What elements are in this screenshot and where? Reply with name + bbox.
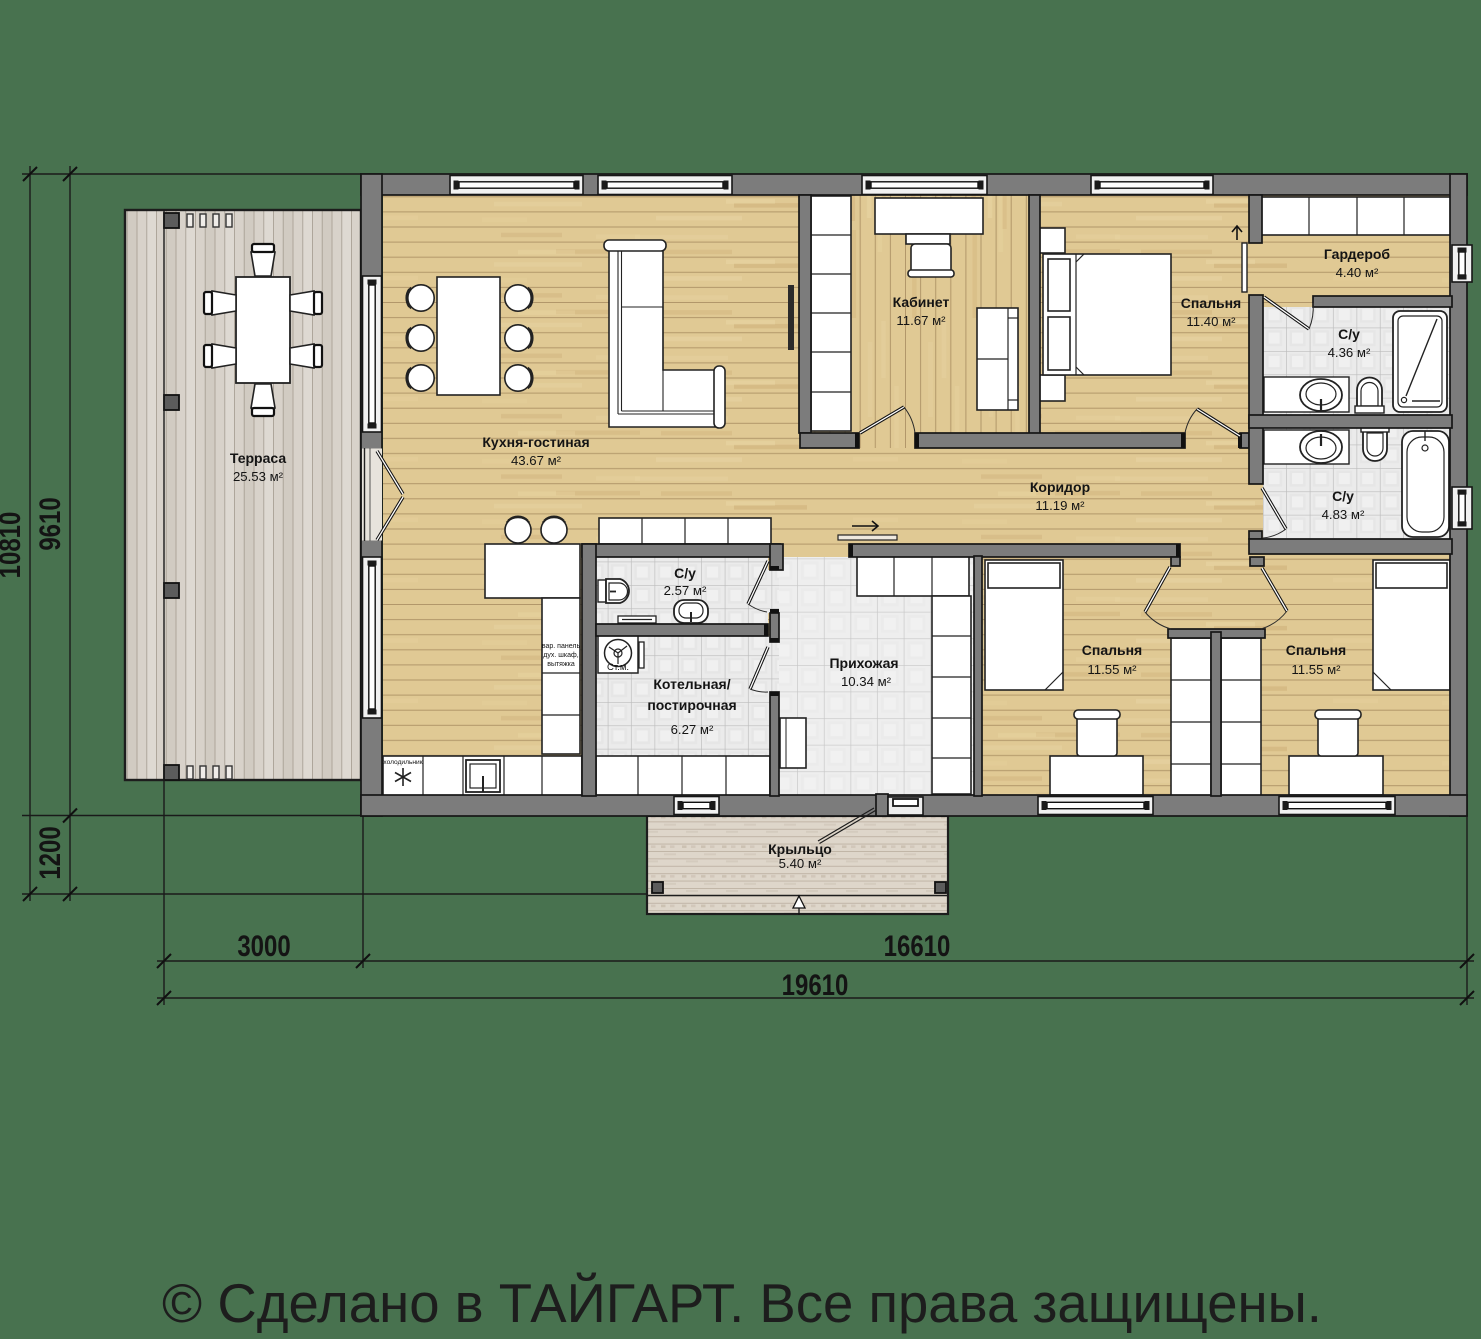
svg-text:дух. шкаф,: дух. шкаф,	[543, 652, 578, 659]
svg-text:3000: 3000	[237, 928, 290, 962]
svg-text:11.19 м²: 11.19 м²	[1035, 498, 1085, 513]
svg-text:вытяжка: вытяжка	[547, 661, 575, 668]
svg-text:4.83 м²: 4.83 м²	[1322, 507, 1365, 522]
svg-text:С/у: С/у	[1332, 488, 1354, 504]
svg-text:С/у: С/у	[1338, 326, 1360, 342]
svg-text:Крыльцо: Крыльцо	[768, 841, 832, 857]
svg-text:2.57 м²: 2.57 м²	[664, 583, 707, 598]
svg-text:холодильник: холодильник	[383, 759, 422, 766]
svg-text:Кухня-гостиная: Кухня-гостиная	[482, 434, 589, 450]
svg-text:11.40 м²: 11.40 м²	[1186, 314, 1236, 329]
svg-text:Спальня: Спальня	[1181, 295, 1241, 311]
svg-text:4.36 м²: 4.36 м²	[1328, 345, 1371, 360]
svg-text:11.55 м²: 11.55 м²	[1087, 662, 1137, 677]
svg-text:4.40 м²: 4.40 м²	[1336, 265, 1379, 280]
svg-text:вар. панель: вар. панель	[542, 643, 581, 650]
svg-text:11.55 м²: 11.55 м²	[1291, 662, 1341, 677]
svg-text:© Сделано в ТАЙГАРТ. Все права: © Сделано в ТАЙГАРТ. Все права защищены.	[162, 1273, 1322, 1334]
svg-text:9610: 9610	[32, 497, 66, 550]
svg-text:Котельная/: Котельная/	[653, 676, 730, 692]
svg-text:10810: 10810	[0, 512, 27, 579]
svg-text:1200: 1200	[32, 826, 66, 879]
svg-text:6.27 м²: 6.27 м²	[671, 722, 714, 737]
svg-text:25.53 м²: 25.53 м²	[233, 469, 284, 484]
svg-text:Ст.м.: Ст.м.	[607, 662, 629, 673]
svg-text:постирочная: постирочная	[647, 697, 736, 713]
svg-text:5.40 м²: 5.40 м²	[779, 856, 822, 871]
svg-text:Спальня: Спальня	[1286, 642, 1346, 658]
svg-text:43.67 м²: 43.67 м²	[511, 453, 562, 468]
svg-text:16610: 16610	[884, 928, 951, 962]
svg-text:Прихожая: Прихожая	[829, 655, 898, 671]
svg-text:Спальня: Спальня	[1082, 642, 1142, 658]
svg-text:19610: 19610	[782, 967, 849, 1001]
svg-text:11.67 м²: 11.67 м²	[896, 313, 946, 328]
svg-text:Коридор: Коридор	[1030, 479, 1090, 495]
svg-text:10.34 м²: 10.34 м²	[841, 674, 892, 689]
svg-text:С/у: С/у	[674, 565, 696, 581]
svg-text:Терраса: Терраса	[230, 450, 286, 466]
svg-text:Кабинет: Кабинет	[893, 294, 950, 310]
svg-text:Гардероб: Гардероб	[1324, 246, 1391, 262]
